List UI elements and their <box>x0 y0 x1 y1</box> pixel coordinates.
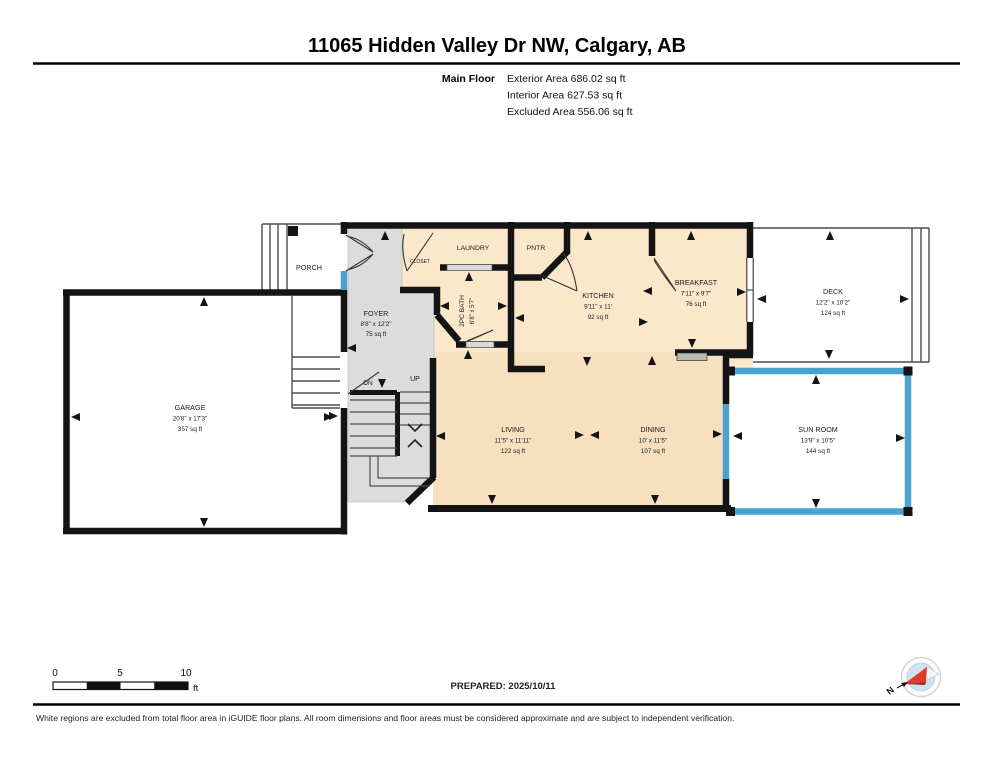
dining-area: 107 sq ft <box>641 448 665 455</box>
closet-name: CLOSET <box>410 259 430 265</box>
room-label-pantry: PNTR <box>527 245 546 252</box>
prepared-date: PREPARED: 2025/10/11 <box>451 681 557 692</box>
sunroom-area: 144 sq ft <box>806 448 830 455</box>
living-name: LIVING <box>501 425 525 434</box>
dining-dims: 10' x 11'5" <box>639 438 667 445</box>
bath-opening <box>466 342 494 348</box>
deck-area: 124 sq ft <box>821 310 845 317</box>
fireplace-element <box>677 353 707 361</box>
bath-name: 2PC BATH <box>459 295 466 327</box>
laundry-opening <box>447 265 492 271</box>
dining-name: DINING <box>640 425 666 434</box>
living-dims: 11'5" x 11'11" <box>495 438 532 445</box>
living-area: 122 sq ft <box>501 448 525 455</box>
kitchen-area: 92 sq ft <box>588 314 609 321</box>
breakfast-window <box>747 258 754 322</box>
foyer-name: FOYER <box>364 309 389 318</box>
garage-dims: 20'8" x 17'3" <box>173 416 208 423</box>
sunroom-dims: 13'9" x 10'5" <box>801 438 836 445</box>
footer: White regions are excluded from total fl… <box>33 705 960 724</box>
room-label-dining: DINING 10' x 11'5" 107 sq ft <box>639 425 667 455</box>
porch-post <box>288 226 298 236</box>
pantry-name: PNTR <box>527 245 546 252</box>
sunroom-name: SUN ROOM <box>798 425 838 434</box>
laundry-name: LAUNDRY <box>457 245 490 252</box>
kitchen-dims: 9'11" x 11' <box>584 304 612 311</box>
room-label-laundry: LAUNDRY <box>457 245 490 252</box>
floor-label: Main Floor <box>442 73 495 85</box>
floorplan-page: 11065 Hidden Valley Dr NW, Calgary, AB M… <box>0 0 993 768</box>
porch-name: PORCH <box>296 263 322 272</box>
stat-interior: Interior Area 627.53 sq ft <box>507 90 622 102</box>
kitchen-name: KITCHEN <box>582 291 614 300</box>
stairs-up-label: UP <box>410 376 420 383</box>
compass-north-label: N <box>885 685 896 697</box>
compass-icon: N <box>885 658 941 697</box>
deck-railing <box>912 228 929 362</box>
living-dining-fill <box>433 352 728 508</box>
scale-tick-0: 0 <box>52 668 58 679</box>
scale-tick-10: 10 <box>180 668 192 679</box>
porch-fill <box>262 224 341 291</box>
page-title: 11065 Hidden Valley Dr NW, Calgary, AB <box>308 35 686 57</box>
stat-exterior: Exterior Area 686.02 sq ft <box>507 73 626 85</box>
garage-name: GARAGE <box>175 403 206 412</box>
disclaimer-text: White regions are excluded from total fl… <box>36 713 734 723</box>
stairs-dn-label: DN <box>363 380 373 387</box>
floorplan-canvas: 11065 Hidden Valley Dr NW, Calgary, AB M… <box>0 0 993 768</box>
foyer-dims: 8'8" x 12'2" <box>360 321 391 328</box>
scale-unit: ft <box>193 683 199 694</box>
foyer-area: 75 sq ft <box>366 331 387 338</box>
deck-name: DECK <box>823 287 843 296</box>
room-label-closet: CLOSET <box>410 259 430 265</box>
bath-dims: 6'8" x 5'7" <box>470 298 476 324</box>
stat-excluded: Excluded Area 556.06 sq ft <box>507 106 633 118</box>
room-label-porch: PORCH <box>296 263 322 272</box>
breakfast-area: 76 sq ft <box>686 301 707 308</box>
header: 11065 Hidden Valley Dr NW, Calgary, AB M… <box>33 35 960 118</box>
garage-area: 357 sq ft <box>178 426 202 433</box>
garage-fill <box>66 294 342 530</box>
breakfast-dims: 7'11" x 9'7" <box>681 291 712 298</box>
scale-bar: 0 5 10 ft <box>52 668 198 694</box>
scale-tick-5: 5 <box>117 668 123 679</box>
breakfast-name: BREAKFAST <box>675 278 718 287</box>
deck-dims: 12'2" x 10'2" <box>816 300 851 307</box>
